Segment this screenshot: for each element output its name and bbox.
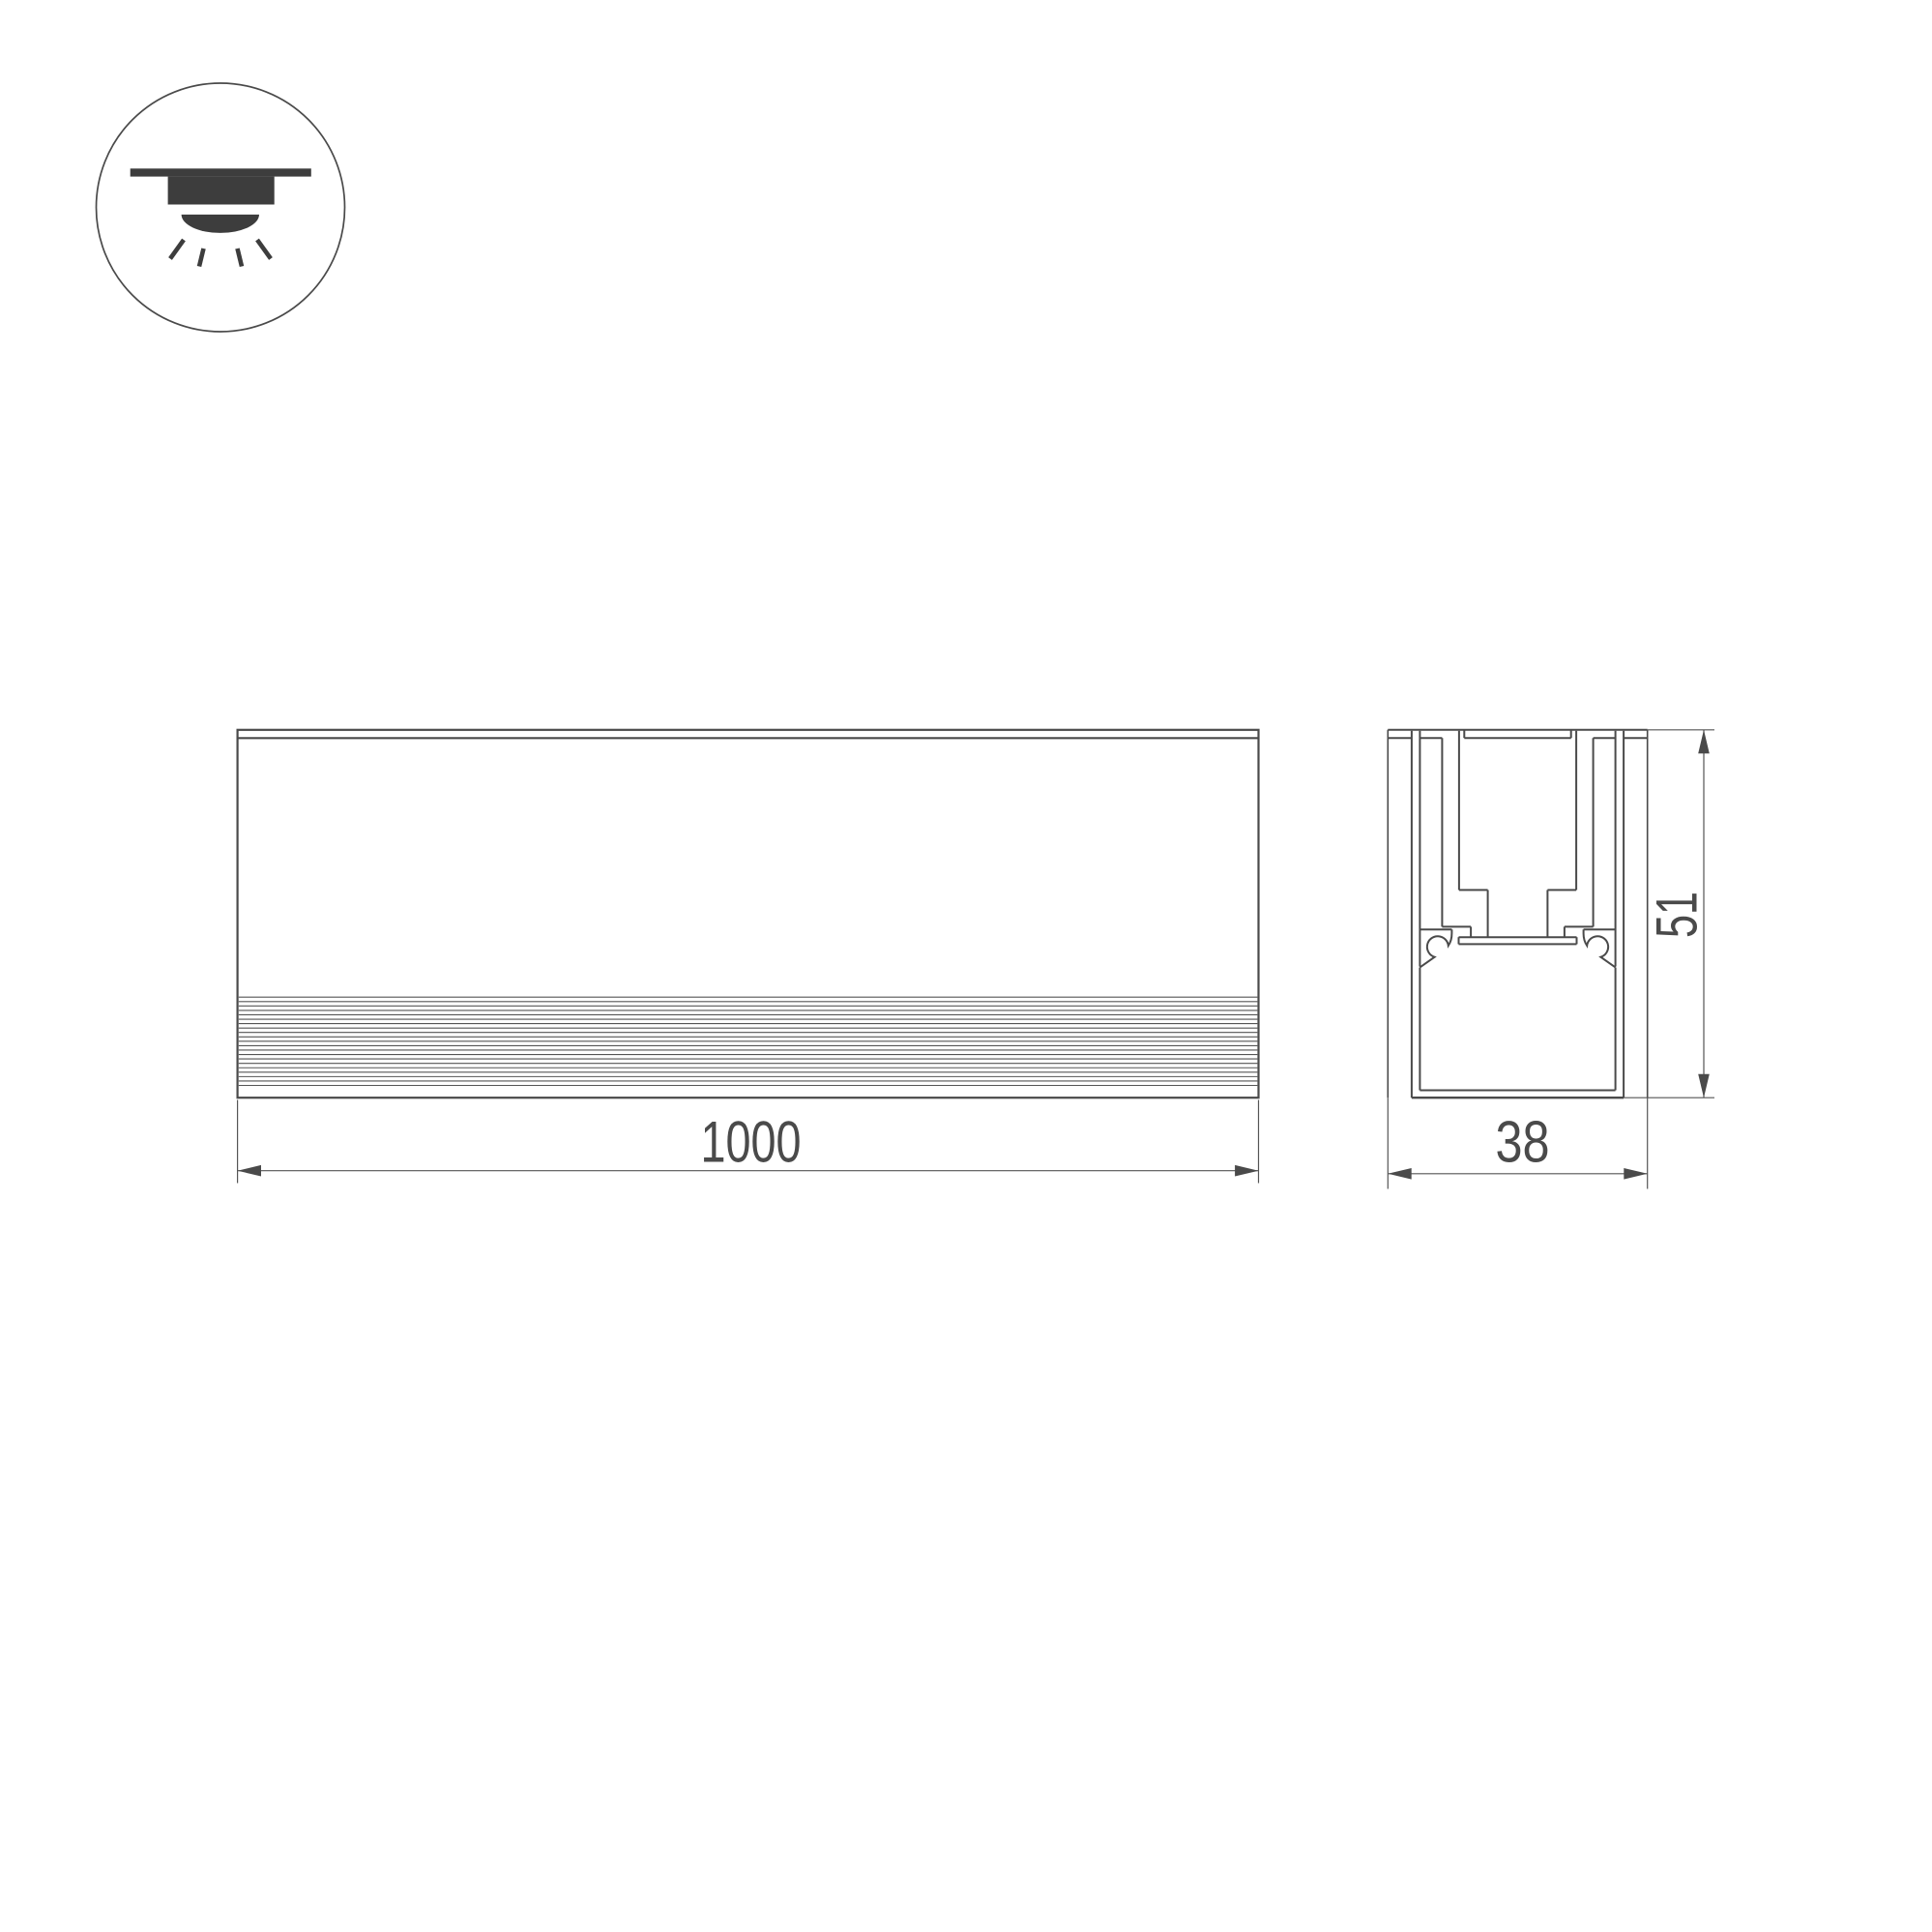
svg-text:51: 51 xyxy=(1646,892,1711,938)
svg-text:38: 38 xyxy=(1495,1109,1549,1174)
svg-text:1000: 1000 xyxy=(700,1110,801,1175)
